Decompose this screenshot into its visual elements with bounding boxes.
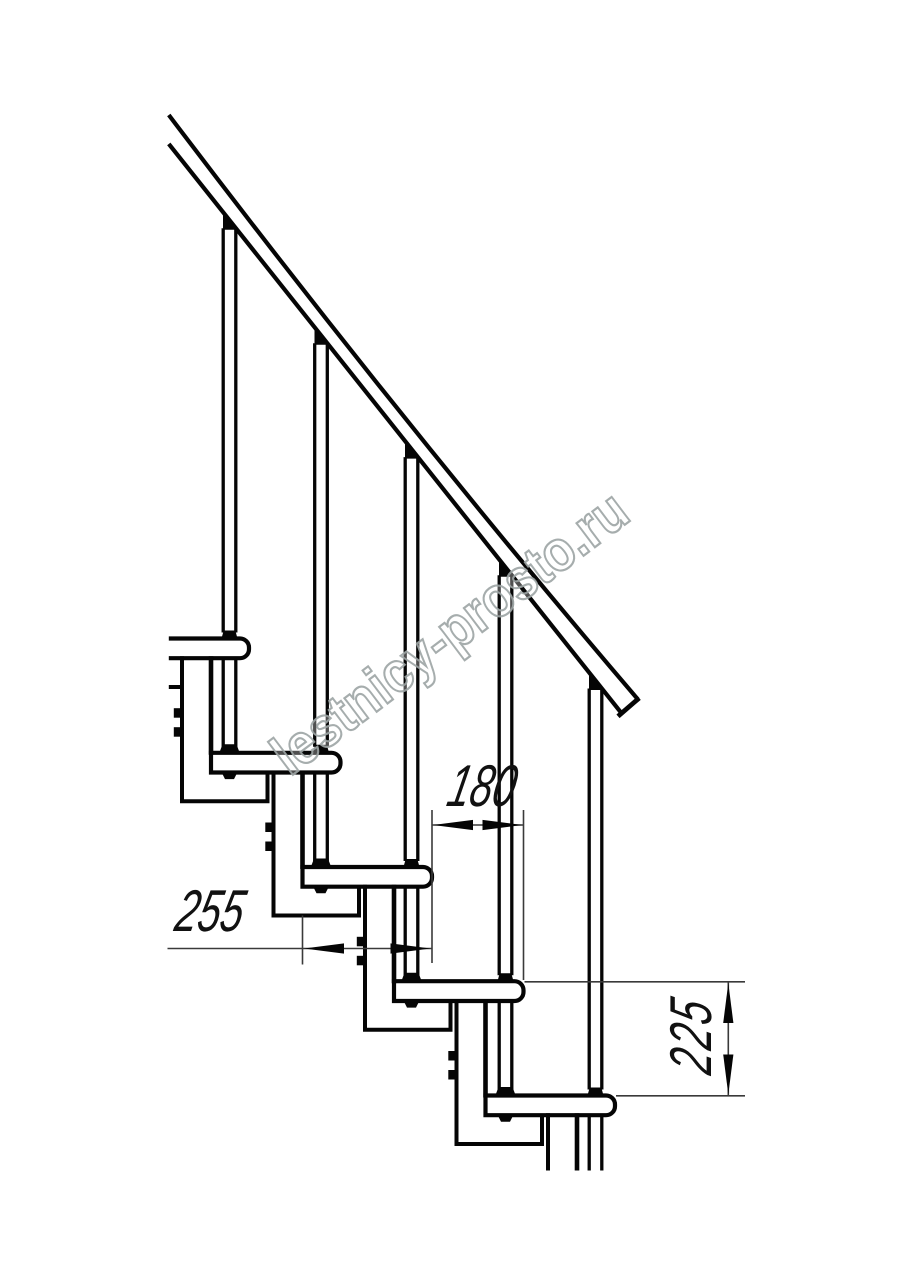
svg-text:225: 225	[658, 991, 724, 1080]
svg-text:255: 255	[170, 878, 252, 944]
